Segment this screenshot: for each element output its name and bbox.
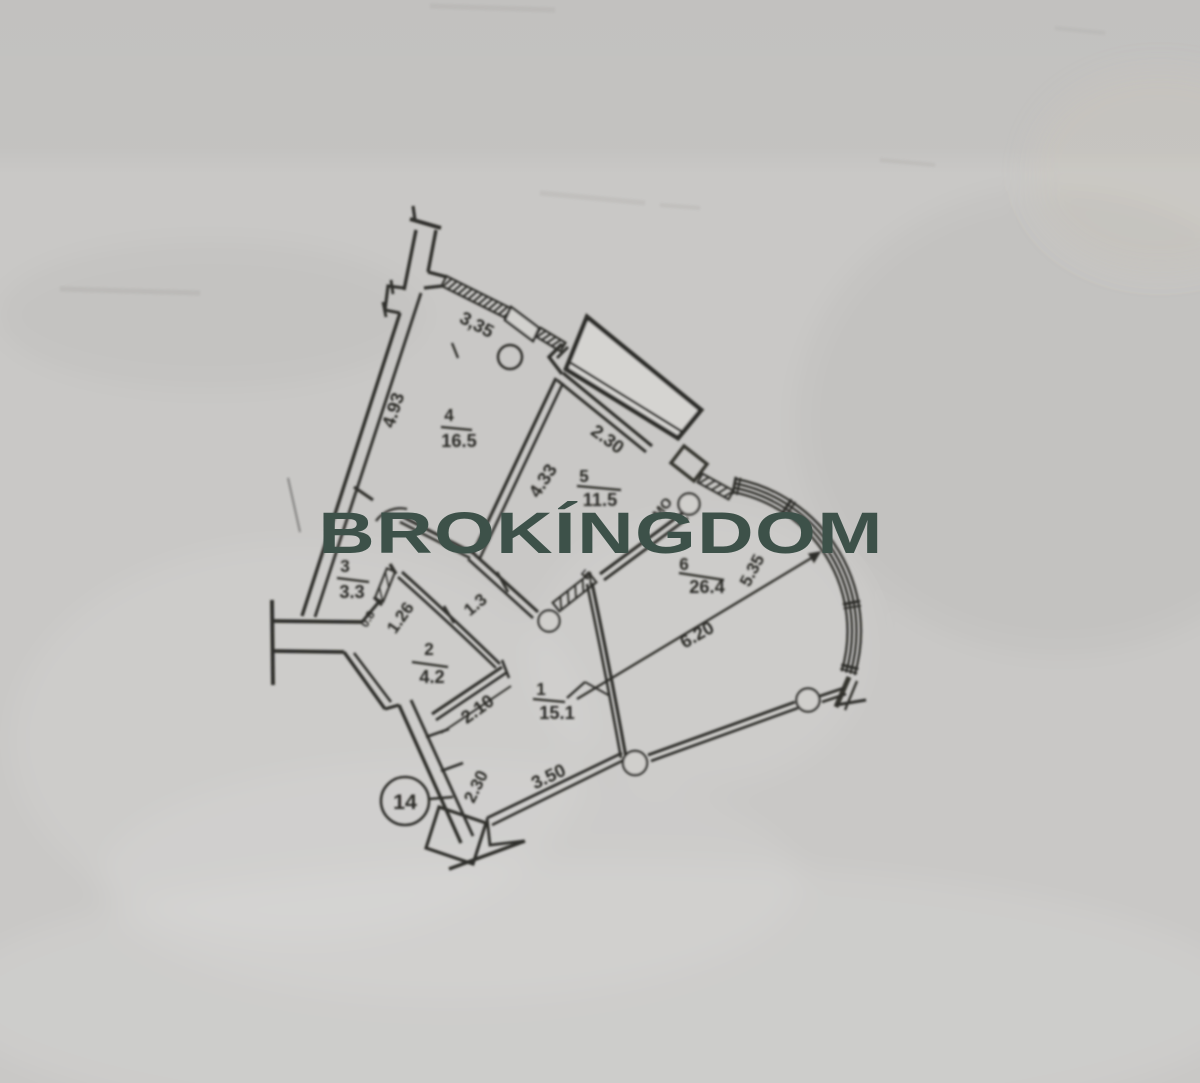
svg-text:4: 4 <box>444 406 454 425</box>
svg-text:16.5: 16.5 <box>441 431 476 451</box>
svg-text:26.4: 26.4 <box>689 577 725 597</box>
svg-text:3.3: 3.3 <box>339 582 364 602</box>
svg-text:1: 1 <box>536 680 546 699</box>
svg-text:2: 2 <box>424 640 434 659</box>
svg-text:5: 5 <box>579 467 589 486</box>
svg-text:15.1: 15.1 <box>539 703 574 723</box>
svg-text:4.2: 4.2 <box>419 667 444 687</box>
svg-text:BROKÍNGDOM: BROKÍNGDOM <box>318 501 883 566</box>
svg-text:14: 14 <box>393 790 417 814</box>
